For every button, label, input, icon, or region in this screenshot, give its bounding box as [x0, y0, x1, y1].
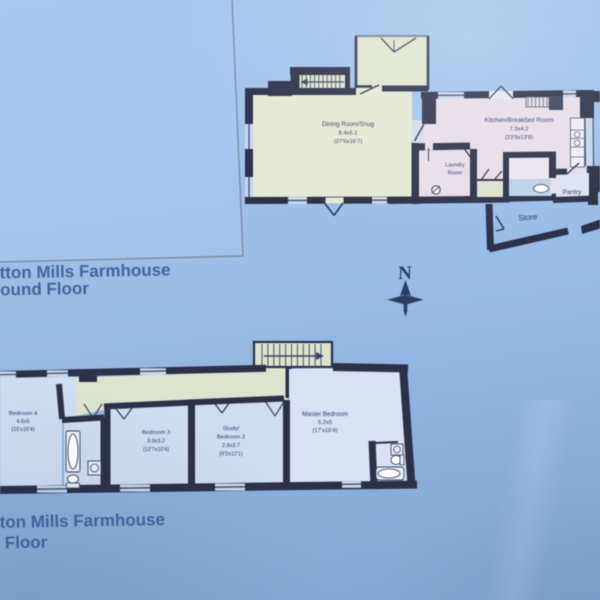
svg-text:(23'9x13'8): (23'9x13'8) — [505, 135, 533, 141]
svg-text:Pantry: Pantry — [563, 189, 583, 196]
svg-text:(27'6x16'7): (27'6x16'7) — [334, 139, 362, 145]
svg-text:Bedroom 3: Bedroom 3 — [142, 430, 170, 436]
svg-text:Hatton Mills Farmhouse: Hatton Mills Farmhouse — [0, 510, 165, 532]
svg-text:Store: Store — [518, 212, 538, 222]
svg-text:Study/: Study/ — [223, 426, 240, 432]
svg-text:Master Bedroom: Master Bedroom — [302, 411, 348, 418]
svg-text:5.2x5: 5.2x5 — [318, 420, 332, 426]
svg-text:(12'7x10'4): (12'7x10'4) — [143, 447, 170, 453]
svg-text:Kitchen/Breakfast Room: Kitchen/Breakfast Room — [485, 117, 554, 124]
svg-text:8.4x5.1: 8.4x5.1 — [338, 131, 357, 137]
svg-text:Ground Floor: Ground Floor — [0, 279, 89, 300]
svg-text:2.8x3.7: 2.8x3.7 — [222, 443, 240, 449]
svg-text:Bedroom 4: Bedroom 4 — [9, 411, 38, 417]
svg-text:(9'2x12'1): (9'2x12'1) — [219, 452, 243, 458]
svg-text:Bedroom 2: Bedroom 2 — [217, 435, 245, 441]
svg-text:3.9x3.2: 3.9x3.2 — [147, 439, 165, 445]
svg-text:4.6x5: 4.6x5 — [16, 419, 29, 425]
svg-text:Dining Room/Snug: Dining Room/Snug — [322, 121, 374, 128]
svg-text:Floor: Floor — [5, 533, 48, 553]
svg-text:N: N — [398, 263, 412, 284]
svg-text:7.3x4.2: 7.3x4.2 — [509, 127, 528, 133]
svg-text:(15'x16'4): (15'x16'4) — [11, 427, 35, 433]
svg-text:Laundry: Laundry — [445, 163, 465, 169]
svg-text:(17'x16'4): (17'x16'4) — [312, 428, 337, 434]
svg-text:Room: Room — [448, 171, 463, 177]
